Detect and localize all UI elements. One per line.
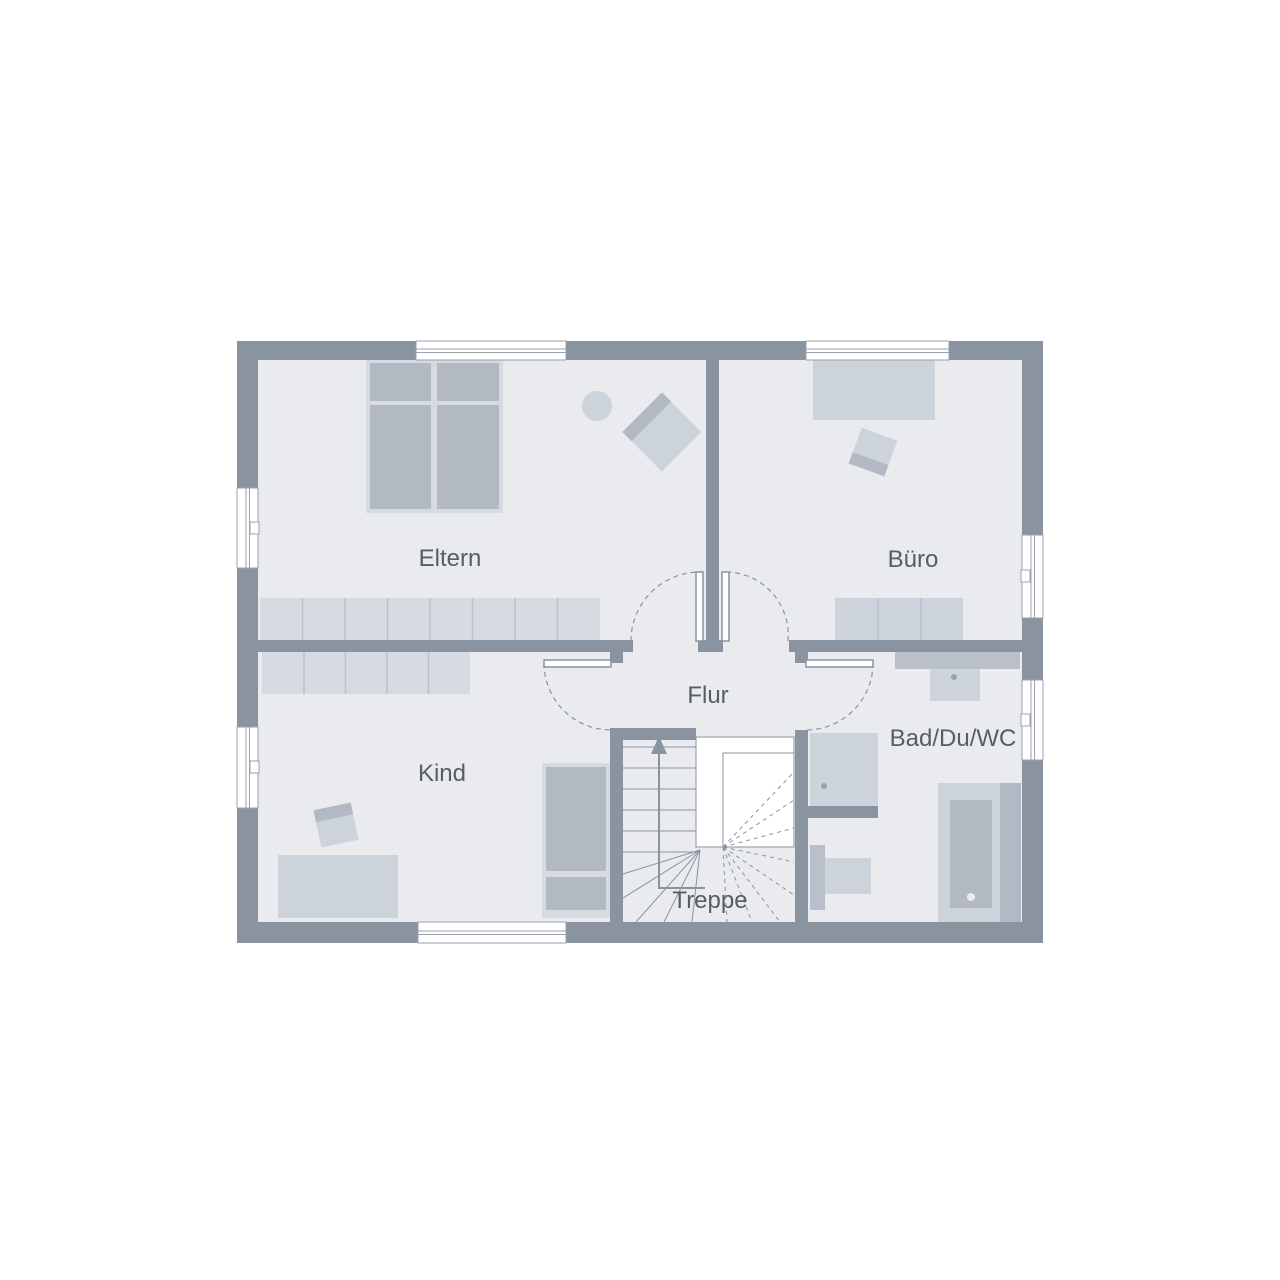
wardrobe-eltern [260, 598, 600, 640]
wall-kind-door-stub [610, 652, 623, 663]
side-table [582, 391, 612, 421]
window-left-kind [237, 727, 259, 808]
label-kind: Kind [418, 760, 466, 787]
bed-pillow [546, 877, 606, 910]
bed-mattress-left [370, 405, 431, 509]
wall-shower-stub [795, 806, 878, 818]
bed-pillow-left [370, 363, 431, 401]
wall-right [1022, 341, 1043, 943]
vanity-counter [895, 652, 1020, 669]
wall-stair-top [610, 728, 696, 740]
bathtub-drain [967, 893, 975, 901]
desk-chair-kind [313, 802, 358, 847]
single-bed-kind [542, 763, 610, 918]
desk-buero [813, 360, 935, 420]
label-buero: Büro [888, 546, 939, 573]
label-bad: Bad/Du/WC [890, 725, 1017, 752]
window-top-buero [806, 341, 949, 360]
bathtub-basin [950, 800, 992, 908]
washbasin-faucet [951, 674, 957, 680]
label-flur: Flur [687, 682, 728, 709]
wall-left [237, 341, 258, 943]
bed-mattress-right [437, 405, 499, 509]
shower [810, 733, 878, 806]
wall-stair-right [795, 730, 808, 922]
sideboard-buero [835, 598, 963, 640]
washbasin [930, 669, 980, 701]
desk-kind [278, 855, 398, 918]
wall-stair-left [610, 730, 623, 922]
window-right-bad [1021, 680, 1043, 760]
bed-pillow-right [437, 363, 499, 401]
wc-cistern [810, 845, 825, 910]
wall-buero-bad [789, 640, 1022, 652]
wardrobe-kind [262, 652, 470, 694]
window-left-eltern [237, 488, 259, 568]
window-right-buero [1021, 535, 1043, 618]
label-treppe: Treppe [672, 887, 747, 914]
wall-bottom [237, 922, 1043, 943]
wall-eltern-kind [258, 640, 633, 652]
bathtub [938, 783, 1021, 922]
bed-mattress [546, 767, 606, 871]
wall-eltern-buero [706, 360, 719, 641]
window-top-eltern [416, 341, 566, 360]
wall-center-stub [698, 640, 723, 652]
shower-drain [821, 783, 827, 789]
label-eltern: Eltern [419, 545, 482, 572]
window-bottom-kind [418, 922, 566, 943]
wc-bowl [825, 858, 871, 894]
bathtub-ledge [1000, 783, 1021, 922]
floor-plan: Eltern Büro Kind Flur Bad/Du/WC Treppe [0, 0, 1280, 1280]
